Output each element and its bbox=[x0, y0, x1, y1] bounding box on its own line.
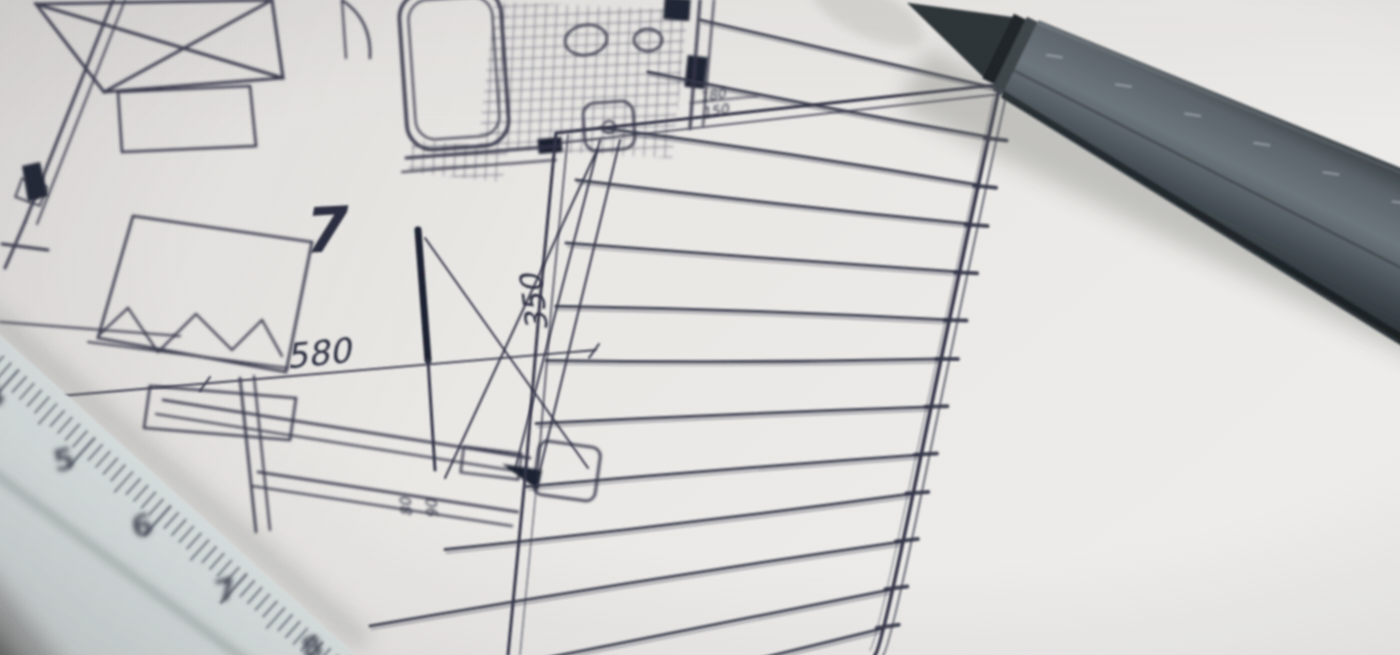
scene-svg: 180 150 7 580 350 bbox=[0, 0, 1400, 655]
detail-dimension-label-80: 80 bbox=[396, 495, 416, 517]
floor-plan-photo: 180 150 7 580 350 bbox=[0, 0, 1400, 655]
width-dimension-label: 580 bbox=[284, 329, 356, 376]
detail-dimension-label-90: 90 bbox=[422, 497, 442, 519]
height-dimension-label: 350 bbox=[513, 269, 555, 333]
